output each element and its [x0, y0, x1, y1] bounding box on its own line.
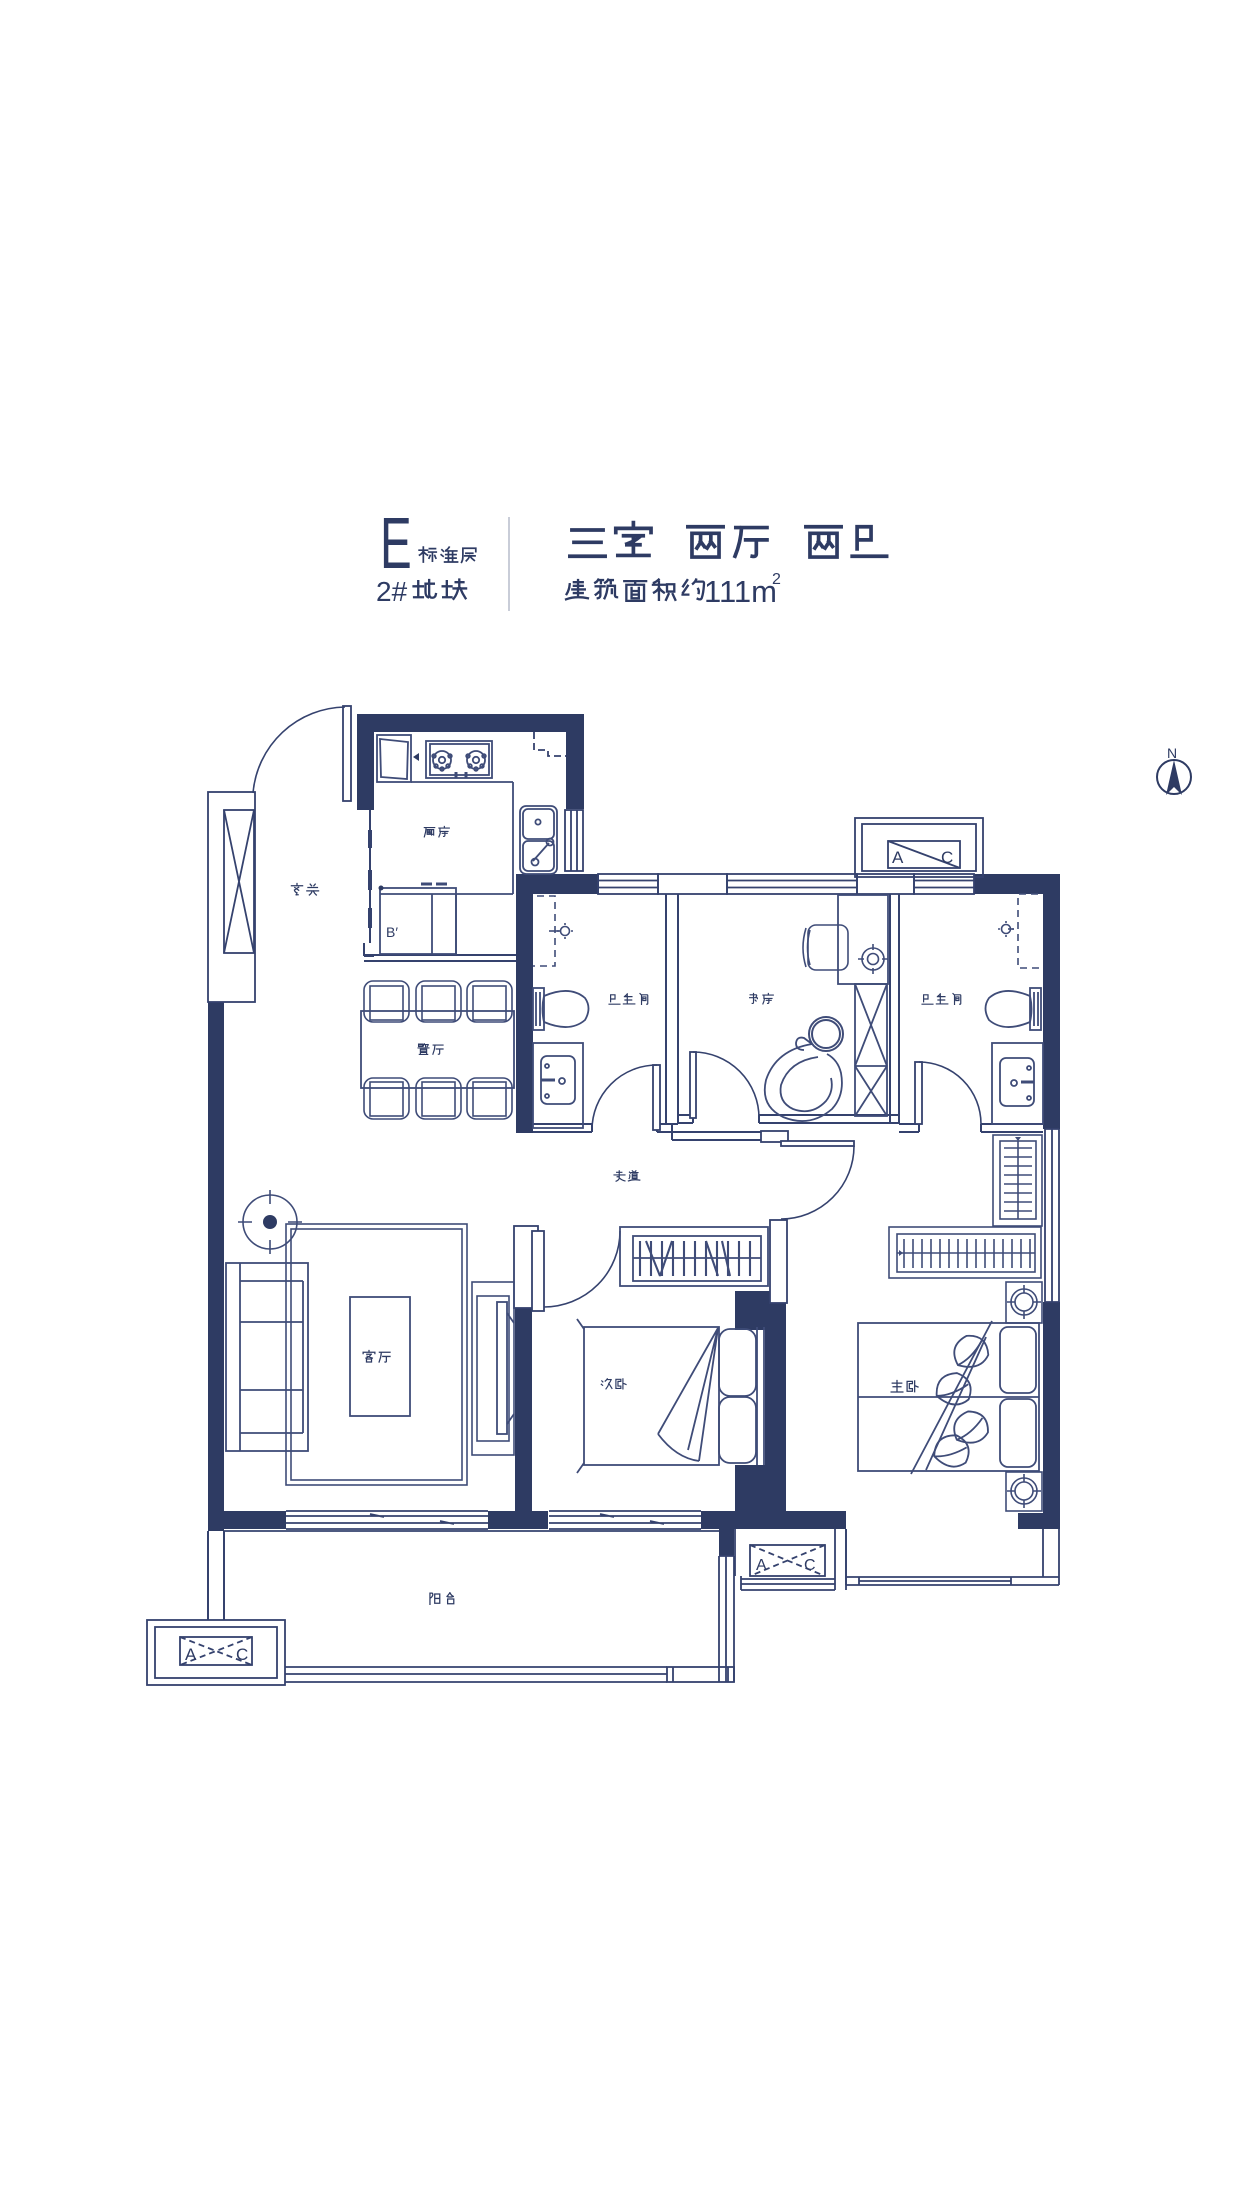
svg-text:C: C [941, 848, 953, 867]
svg-text:A: A [756, 1557, 767, 1574]
svg-text:E: E [380, 503, 412, 583]
svg-text:2#: 2# [376, 576, 408, 607]
svg-text:N: N [1167, 745, 1177, 761]
svg-text:A: A [185, 1645, 197, 1664]
svg-text:2: 2 [772, 571, 781, 588]
svg-text:A: A [892, 848, 904, 867]
svg-text:C: C [804, 1557, 816, 1574]
svg-text:C: C [236, 1645, 248, 1664]
svg-text:B′: B′ [386, 924, 398, 940]
svg-text:111m: 111m [704, 574, 777, 609]
